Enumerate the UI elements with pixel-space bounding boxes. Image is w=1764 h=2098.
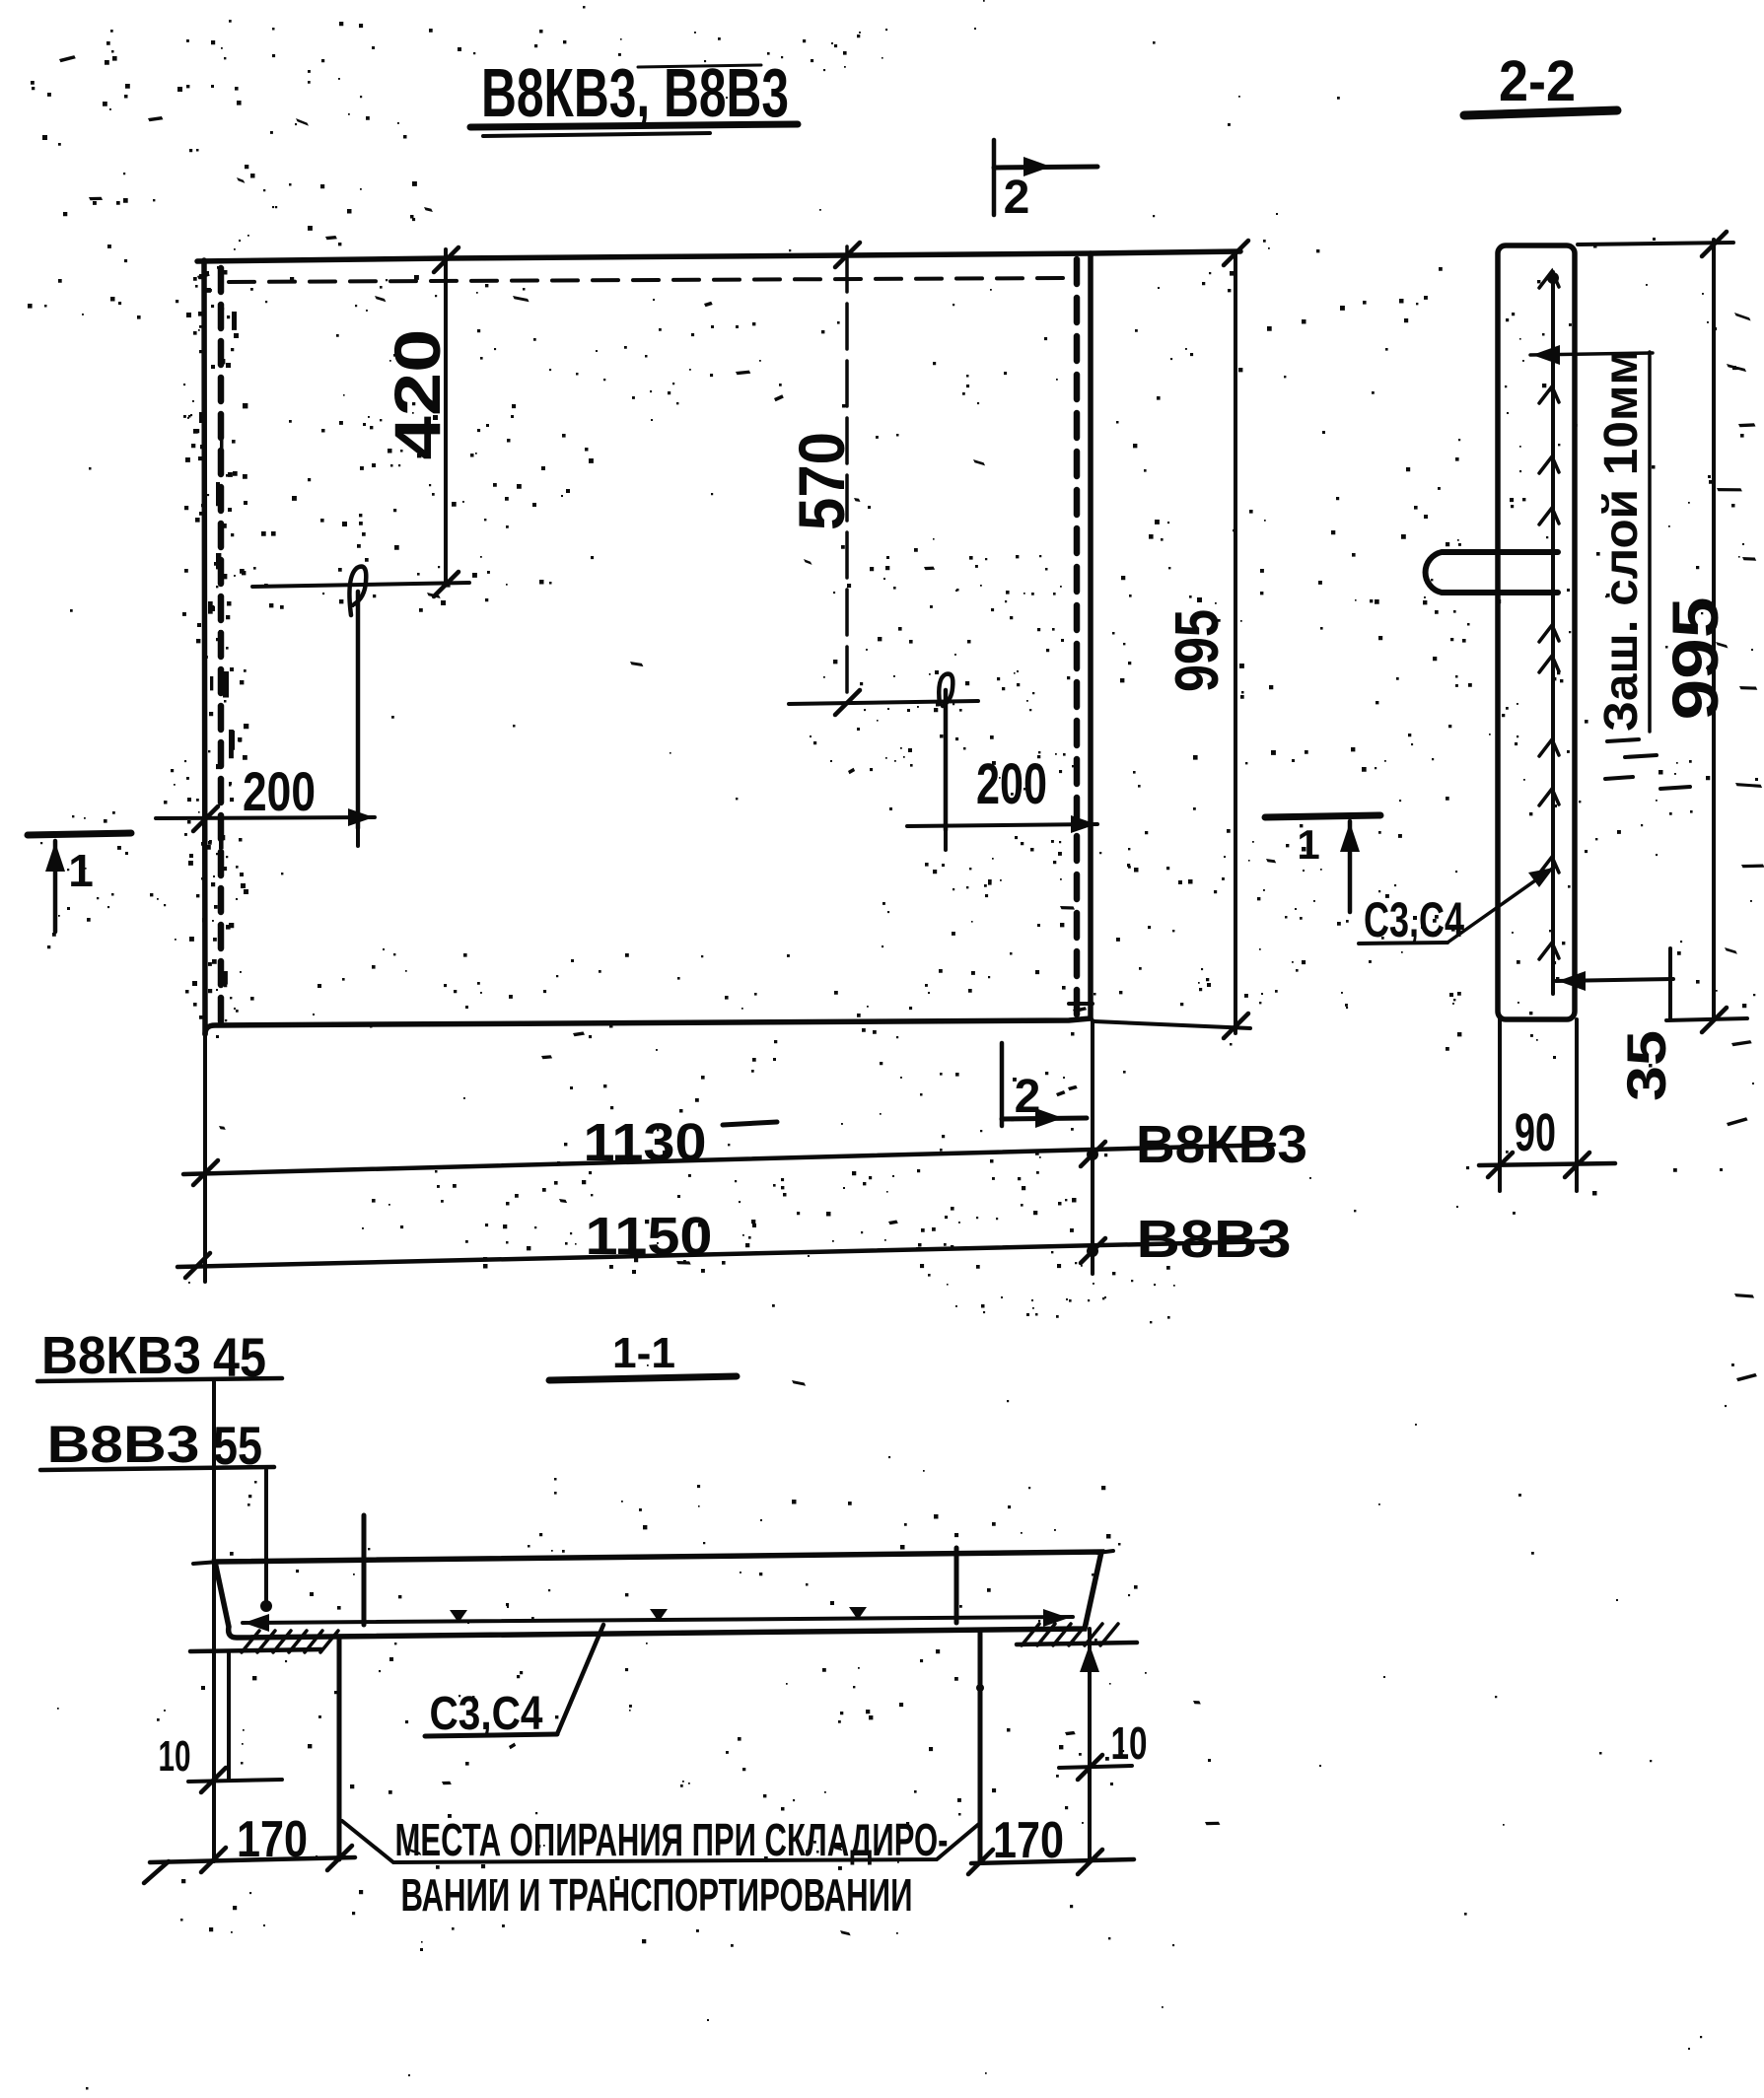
svg-text:В8В3: В8В3	[47, 1416, 200, 1474]
svg-text:995: 995	[1164, 609, 1232, 692]
svg-text:ВАНИИ И ТРАНСПОРТИРОВАНИИ: ВАНИИ И ТРАНСПОРТИРОВАНИИ	[401, 1869, 913, 1921]
svg-text:420: 420	[381, 329, 454, 460]
svg-text:35: 35	[1615, 1030, 1677, 1101]
svg-text:2: 2	[1004, 172, 1030, 224]
svg-text:В8КВ3: В8КВ3	[1136, 1115, 1307, 1174]
svg-text:В8КВ3: В8КВ3	[41, 1326, 201, 1385]
svg-text:90: 90	[1515, 1103, 1556, 1162]
svg-text:10: 10	[159, 1732, 191, 1781]
svg-text:МЕСТА ОПИРАНИЯ ПРИ СКЛАДИРО-: МЕСТА ОПИРАНИЯ ПРИ СКЛАДИРО-	[395, 1814, 949, 1865]
svg-text:1: 1	[68, 845, 94, 896]
svg-text:2-2: 2-2	[1499, 49, 1576, 113]
svg-text:Заш. слой 10мм: Заш. слой 10мм	[1595, 349, 1648, 732]
svg-text:170: 170	[237, 1811, 308, 1868]
svg-text:1150: 1150	[586, 1207, 713, 1266]
svg-text:1: 1	[1297, 821, 1319, 868]
svg-text:10: 10	[1111, 1717, 1148, 1769]
svg-text:В8В3: В8В3	[1137, 1210, 1292, 1269]
svg-text:200: 200	[243, 760, 316, 822]
svg-text:170: 170	[993, 1812, 1064, 1869]
svg-text:2: 2	[1015, 1071, 1041, 1123]
svg-text:995: 995	[1658, 597, 1731, 721]
svg-text:1130: 1130	[584, 1113, 707, 1172]
svg-text:200: 200	[976, 752, 1047, 816]
svg-text:570: 570	[785, 432, 858, 530]
svg-text:1-1: 1-1	[612, 1329, 675, 1377]
